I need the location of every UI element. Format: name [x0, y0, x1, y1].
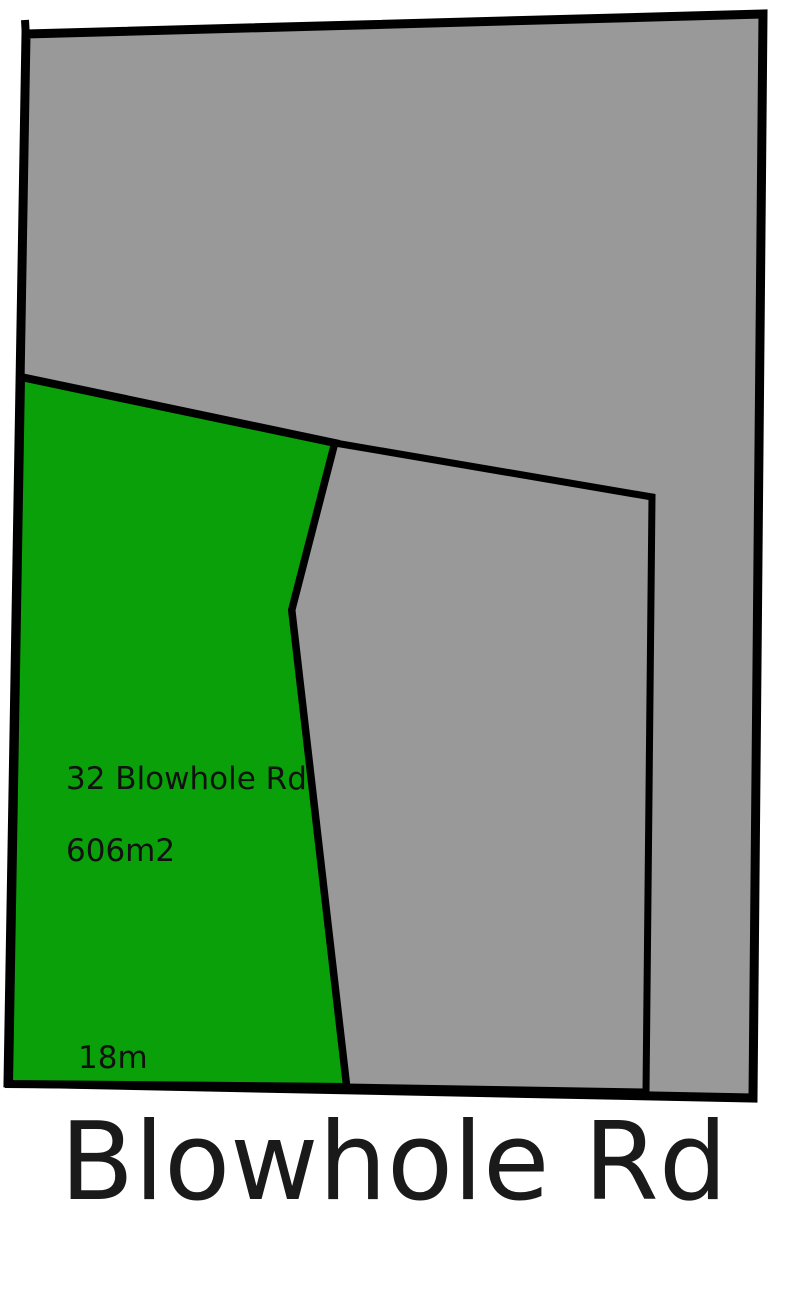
top-left-corner-tick [25, 20, 26, 38]
highlighted-lot-parcel [9, 377, 347, 1087]
lot-area-label: 606m2 [66, 836, 175, 867]
lot-map: 32 Blowhole Rd 606m2 18m Blowhole Rd [0, 0, 800, 1312]
street-name-label: Blowhole Rd [60, 1109, 727, 1217]
lot-frontage-label: 18m [78, 1043, 148, 1074]
neighbour-parcel-boundary [292, 443, 652, 1092]
lot-address-label: 32 Blowhole Rd [66, 764, 307, 795]
